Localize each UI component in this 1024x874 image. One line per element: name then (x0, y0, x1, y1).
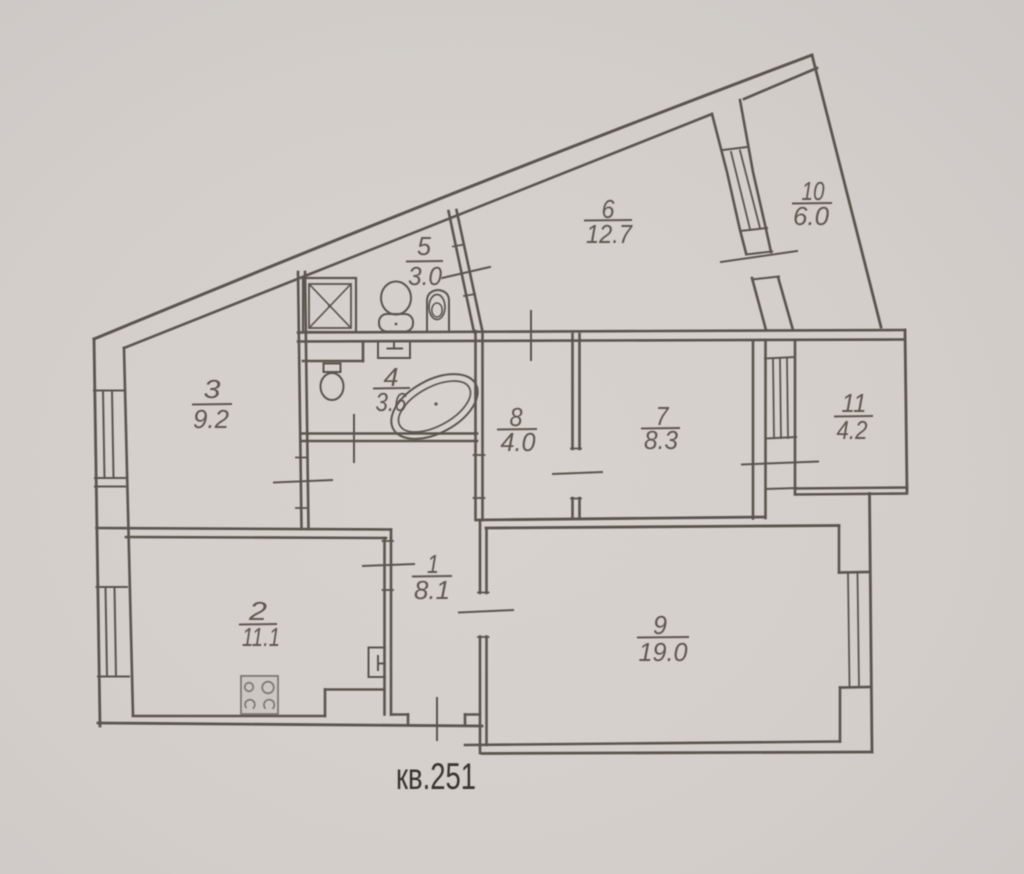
svg-text:19.0: 19.0 (639, 637, 689, 667)
svg-text:3.0: 3.0 (408, 261, 442, 291)
svg-text:4.0: 4.0 (501, 427, 537, 457)
svg-text:11: 11 (842, 388, 867, 418)
svg-text:9.2: 9.2 (193, 404, 230, 434)
svg-text:3.6: 3.6 (376, 387, 407, 417)
svg-text:5: 5 (417, 231, 432, 261)
svg-text:кв.251: кв.251 (396, 756, 476, 797)
svg-text:8.3: 8.3 (644, 425, 678, 455)
svg-text:11.1: 11.1 (242, 622, 280, 652)
svg-text:9: 9 (653, 610, 667, 640)
svg-text:8.1: 8.1 (414, 575, 450, 605)
svg-text:3: 3 (204, 374, 222, 404)
svg-text:6.0: 6.0 (793, 201, 830, 231)
svg-text:4.2: 4.2 (837, 415, 868, 445)
svg-text:12.7: 12.7 (586, 219, 633, 249)
